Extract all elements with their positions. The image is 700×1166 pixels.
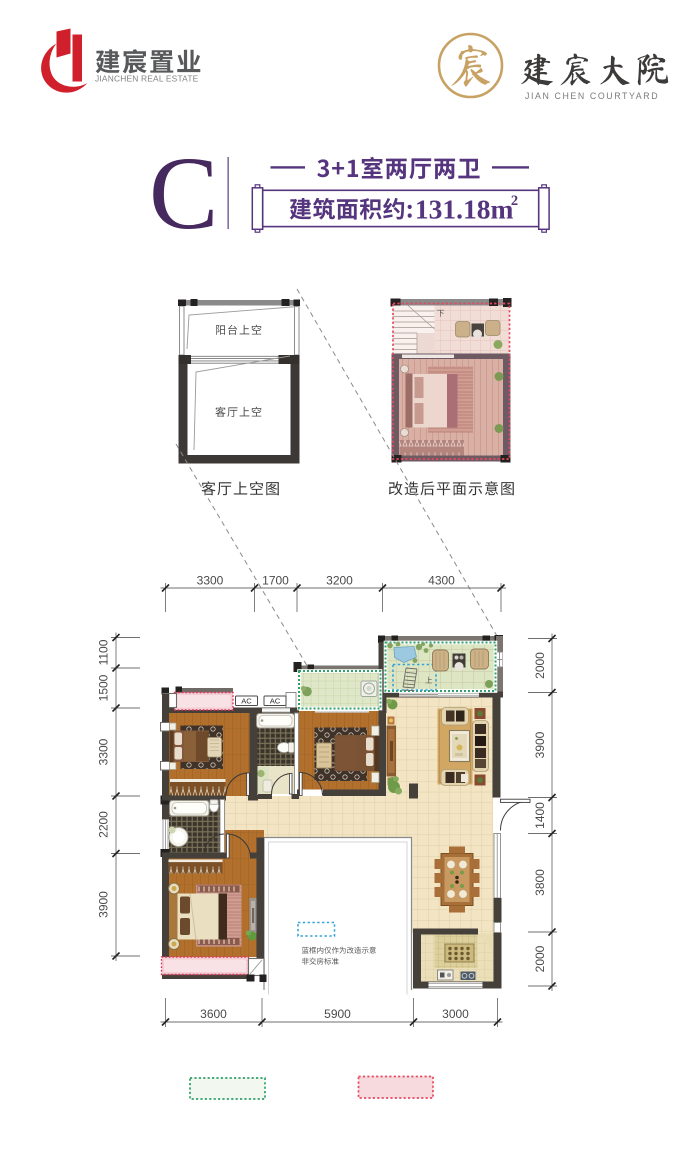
svg-text:2000: 2000	[533, 652, 547, 679]
svg-text:JIANCHEN REAL ESTATE: JIANCHEN REAL ESTATE	[95, 74, 199, 84]
svg-text:1500: 1500	[97, 674, 111, 701]
svg-text:2000: 2000	[533, 945, 547, 972]
svg-text:JIAN CHEN COURTYARD: JIAN CHEN COURTYARD	[525, 91, 659, 101]
svg-text:5900: 5900	[324, 1007, 351, 1021]
svg-text:3900: 3900	[97, 891, 111, 918]
svg-text:AC: AC	[270, 696, 281, 705]
svg-text:3800: 3800	[533, 869, 547, 896]
svg-text:3300: 3300	[97, 738, 111, 765]
svg-text:4300: 4300	[428, 574, 455, 588]
svg-text:1400: 1400	[533, 802, 547, 829]
svg-text:2: 2	[511, 193, 518, 209]
svg-text:1700: 1700	[262, 574, 289, 588]
svg-text:3300: 3300	[197, 574, 224, 588]
svg-text:3600: 3600	[200, 1007, 227, 1021]
svg-text:3000: 3000	[442, 1007, 469, 1021]
svg-text:C: C	[149, 136, 218, 251]
svg-text:1100: 1100	[97, 639, 111, 665]
svg-text:3200: 3200	[326, 574, 353, 588]
svg-text:131.18m: 131.18m	[415, 194, 514, 225]
svg-text:AC: AC	[241, 696, 252, 705]
svg-text:3900: 3900	[533, 731, 547, 758]
svg-text:2200: 2200	[97, 811, 111, 838]
